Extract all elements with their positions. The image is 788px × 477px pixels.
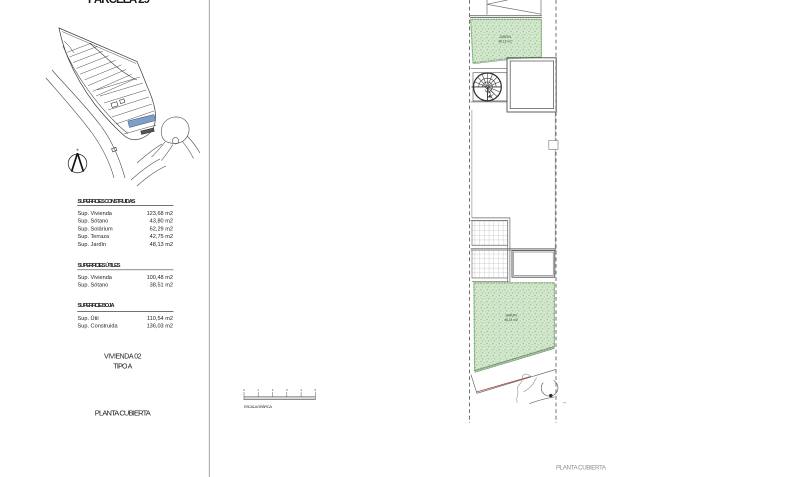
svg-text:38,51 m2: 38,51 m2 [150, 283, 173, 289]
svg-text:Sup. Vivienda: Sup. Vivienda [78, 275, 113, 281]
svg-text:SUPERFICIE BOJA: SUPERFICIE BOJA [78, 303, 115, 309]
svg-text:JARDIN: JARDIN [499, 35, 511, 39]
svg-text:JARDIN: JARDIN [505, 314, 517, 318]
svg-text:1: 1 [257, 388, 259, 392]
svg-text:Sup. Solárium: Sup. Solárium [78, 226, 113, 232]
svg-text:Sup. Sótano: Sup. Sótano [78, 219, 109, 225]
svg-text:VIVIENDA 02: VIVIENDA 02 [104, 353, 142, 360]
svg-text:PLANTA CUBIERTA: PLANTA CUBIERTA [95, 408, 151, 417]
svg-text:48,13 m2: 48,13 m2 [504, 318, 518, 322]
svg-text:TIPO A: TIPO A [113, 363, 132, 370]
svg-text:3: 3 [286, 388, 288, 392]
svg-text:62,29 m2: 62,29 m2 [150, 226, 173, 232]
svg-text:Sup. Terraza: Sup. Terraza [78, 234, 111, 240]
svg-text:Sup. Jardín: Sup. Jardín [78, 242, 107, 248]
svg-text:Sup. Útil: Sup. Útil [78, 315, 99, 322]
svg-text:Sup. Sótano: Sup. Sótano [78, 283, 109, 289]
svg-text:110,54 m2: 110,54 m2 [147, 316, 173, 322]
svg-text:43,80 m2: 43,80 m2 [150, 219, 173, 225]
svg-text:0: 0 [243, 388, 245, 392]
svg-text:5: 5 [315, 388, 317, 392]
svg-text:48,13 m2: 48,13 m2 [150, 242, 173, 248]
svg-text:136,03 m2: 136,03 m2 [147, 324, 173, 330]
svg-text:PLANTA CUBIERTA: PLANTA CUBIERTA [556, 465, 607, 472]
svg-text:123,68 m2: 123,68 m2 [147, 211, 173, 217]
svg-text:ESCALA GRÁFICA: ESCALA GRÁFICA [244, 404, 272, 409]
svg-text:PARCELA 29: PARCELA 29 [88, 0, 150, 6]
svg-text:42,75 m2: 42,75 m2 [150, 234, 173, 240]
svg-text:SUPERFICIES CONSTRUIDAS: SUPERFICIES CONSTRUIDAS [78, 199, 136, 205]
svg-text:Sup. Vivienda: Sup. Vivienda [78, 211, 113, 217]
svg-text:2: 2 [272, 388, 274, 392]
svg-text:48,13 m2: 48,13 m2 [498, 40, 512, 44]
svg-text:4: 4 [300, 388, 302, 392]
svg-text:Sup. Construida: Sup. Construida [78, 324, 119, 330]
svg-text:100,48 m2: 100,48 m2 [147, 275, 173, 281]
svg-text:SUPERFICIES ÚTILES: SUPERFICIES ÚTILES [78, 262, 121, 269]
